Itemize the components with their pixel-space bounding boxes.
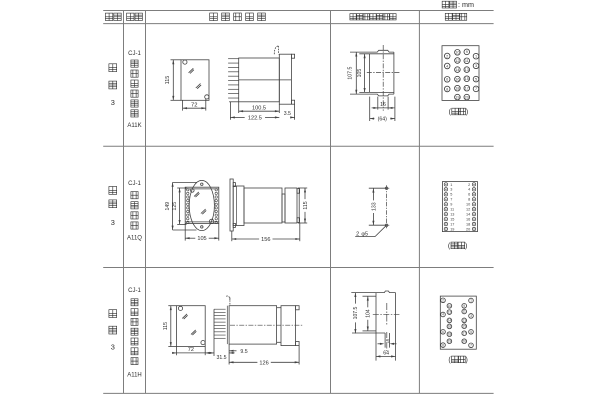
svg-text:CJ-1: CJ-1 (128, 288, 141, 294)
svg-text:125: 125 (172, 202, 178, 211)
svg-text:19: 19 (450, 227, 454, 231)
svg-text:9: 9 (466, 50, 468, 54)
svg-text:4: 4 (446, 64, 448, 68)
svg-text:): ) (466, 357, 468, 364)
svg-text:5: 5 (475, 77, 477, 81)
svg-text:6: 6 (468, 193, 470, 197)
svg-text:17: 17 (465, 87, 469, 91)
svg-text:3: 3 (450, 188, 452, 192)
svg-text:2: 2 (442, 298, 444, 302)
svg-text:18: 18 (455, 87, 459, 91)
svg-text:4: 4 (468, 188, 470, 192)
svg-text:100.5: 100.5 (252, 106, 266, 112)
svg-text:CJ-1: CJ-1 (128, 51, 141, 57)
svg-text:105: 105 (197, 236, 206, 242)
svg-text:1: 1 (470, 299, 472, 303)
svg-text:107.5: 107.5 (348, 66, 354, 79)
svg-text:133: 133 (371, 202, 377, 211)
svg-text:122.5: 122.5 (248, 115, 262, 121)
svg-text:CJ-1: CJ-1 (128, 181, 141, 187)
svg-text:115: 115 (303, 201, 309, 209)
svg-text:A11Q: A11Q (127, 235, 142, 241)
svg-text:2: 2 (356, 231, 359, 237)
svg-text:3: 3 (475, 64, 477, 68)
svg-text:20: 20 (466, 227, 470, 231)
svg-text:105: 105 (357, 69, 363, 78)
svg-text:12: 12 (466, 208, 470, 212)
svg-text:16: 16 (380, 102, 386, 108)
svg-text:3.5: 3.5 (284, 111, 291, 117)
svg-text:): ) (466, 109, 468, 116)
svg-text:2: 2 (468, 183, 470, 187)
svg-text:72: 72 (191, 103, 197, 109)
svg-text:10: 10 (466, 203, 470, 207)
svg-text:3: 3 (111, 218, 115, 227)
svg-text:1: 1 (475, 55, 477, 59)
svg-text:): ) (465, 243, 467, 250)
svg-text:16: 16 (385, 338, 390, 343)
svg-text:6: 6 (442, 330, 444, 334)
svg-text:(: ( (448, 243, 451, 250)
svg-text:18: 18 (466, 222, 470, 226)
svg-text:11: 11 (465, 59, 469, 63)
svg-text:6: 6 (446, 78, 448, 82)
svg-text:14: 14 (448, 319, 452, 323)
svg-text:(64): (64) (378, 116, 387, 122)
svg-text:13: 13 (450, 213, 454, 217)
svg-text:10: 10 (448, 304, 452, 308)
svg-text:20: 20 (465, 95, 469, 99)
svg-text:15: 15 (462, 324, 466, 328)
svg-text:19: 19 (455, 95, 459, 99)
svg-text:A11K: A11K (127, 123, 141, 129)
svg-text:5: 5 (470, 330, 472, 334)
svg-text:5: 5 (450, 193, 452, 197)
svg-text:2: 2 (446, 54, 448, 58)
svg-text:16: 16 (455, 77, 459, 81)
svg-text:4: 4 (442, 313, 444, 317)
svg-text:10: 10 (455, 51, 459, 55)
svg-text:20: 20 (462, 339, 466, 343)
svg-text:1: 1 (450, 183, 452, 187)
svg-text:3: 3 (111, 342, 115, 351)
svg-text:16: 16 (448, 325, 452, 329)
svg-text:7: 7 (475, 87, 477, 91)
svg-text:φ5: φ5 (361, 231, 368, 237)
svg-text:115: 115 (163, 322, 169, 330)
svg-text:11: 11 (462, 310, 466, 314)
svg-text:(: ( (449, 109, 452, 116)
svg-text:12: 12 (455, 59, 459, 63)
svg-text:(: ( (448, 357, 451, 364)
svg-text:3: 3 (111, 98, 115, 107)
svg-text:18: 18 (448, 332, 452, 336)
svg-text:126: 126 (259, 360, 268, 366)
svg-text:15: 15 (465, 77, 469, 81)
svg-text:31.5: 31.5 (216, 355, 226, 361)
svg-text:7: 7 (470, 343, 472, 347)
svg-text:149: 149 (165, 202, 171, 211)
svg-text:104: 104 (366, 309, 372, 318)
svg-text:15: 15 (450, 217, 454, 221)
svg-text:72: 72 (188, 347, 194, 353)
svg-text:: mm: : mm (458, 0, 474, 9)
svg-text:19: 19 (448, 339, 452, 343)
svg-text:156: 156 (261, 237, 270, 243)
svg-text:16: 16 (466, 217, 470, 221)
svg-text:12: 12 (448, 310, 452, 314)
svg-text:7: 7 (450, 198, 452, 202)
svg-text:3: 3 (470, 314, 472, 318)
svg-text:11: 11 (450, 208, 454, 212)
svg-text:8: 8 (442, 343, 444, 347)
svg-text:8: 8 (468, 198, 470, 202)
svg-text:64: 64 (383, 351, 389, 357)
svg-text:13: 13 (465, 68, 469, 72)
svg-text:115: 115 (165, 76, 171, 85)
svg-text:17: 17 (450, 222, 454, 226)
svg-text:A11H: A11H (127, 373, 142, 379)
svg-text:8: 8 (446, 87, 448, 91)
svg-text:107.5: 107.5 (353, 306, 359, 319)
svg-text:9.5: 9.5 (240, 349, 247, 355)
svg-text:13: 13 (462, 319, 466, 323)
svg-text:14: 14 (455, 68, 459, 72)
svg-text:17: 17 (462, 331, 466, 335)
svg-text:9: 9 (450, 203, 452, 207)
svg-text:9: 9 (463, 304, 465, 308)
svg-text:14: 14 (466, 213, 470, 217)
